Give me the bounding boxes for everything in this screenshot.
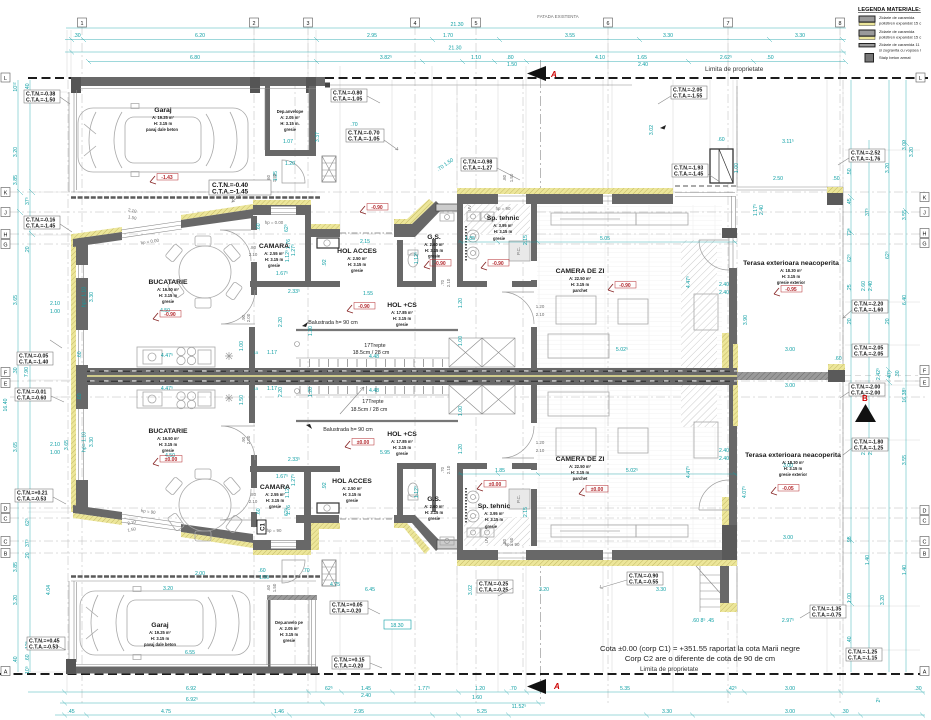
svg-text:1.00: 1.00 [458, 406, 464, 416]
svg-text:.20: .20 [25, 246, 31, 253]
svg-text:Corp C2 are o diferente de cot: Corp C2 are o diferente de cota de 90 de… [625, 654, 775, 663]
svg-text:2.40: 2.40 [719, 448, 729, 454]
svg-text:K: K [923, 196, 927, 202]
svg-text:C.T.A.=-0.53: C.T.A.=-0.53 [17, 497, 46, 503]
svg-text:4.75: 4.75 [161, 709, 171, 715]
svg-text:gresie: gresie [268, 263, 281, 268]
svg-text:.20: .20 [25, 552, 31, 559]
svg-text:3.00: 3.00 [785, 347, 795, 353]
svg-text:3.30: 3.30 [795, 33, 805, 39]
svg-text:C: C [4, 517, 8, 523]
svg-text:2.10: 2.10 [249, 252, 258, 257]
svg-text:1.67⁵: 1.67⁵ [276, 271, 288, 277]
svg-text:1.00: 1.00 [734, 163, 740, 173]
svg-text:gresie: gresie [485, 524, 498, 529]
svg-text:3.20: 3.20 [13, 595, 19, 605]
svg-text:G: G [922, 242, 926, 248]
svg-text:4.48: 4.48 [369, 388, 379, 394]
svg-text:2.10: 2.10 [50, 442, 60, 448]
svg-text:A: 2.60 m²: A: 2.60 m² [424, 242, 444, 247]
svg-text:.20: .20 [885, 318, 891, 325]
svg-text:.60: .60 [266, 584, 271, 591]
svg-text:gresie: gresie [493, 236, 506, 241]
svg-text:H: 3.15 m: H: 3.15 m [154, 121, 173, 126]
svg-text:1.55: 1.55 [363, 291, 373, 297]
svg-text:1.27⁵: 1.27⁵ [291, 474, 297, 486]
svg-text:21.30: 21.30 [449, 46, 462, 52]
svg-text:H: 3.15 m: H: 3.15 m [571, 282, 590, 287]
svg-text:6.45: 6.45 [365, 587, 375, 593]
svg-text:3.55: 3.55 [902, 455, 908, 465]
svg-text:1.00: 1.00 [847, 593, 853, 603]
svg-text:H: 3.15 m: H: 3.15 m [485, 517, 504, 522]
svg-text:2.10: 2.10 [536, 312, 545, 317]
svg-text:A: 2.50 m²: A: 2.50 m² [342, 486, 362, 491]
svg-text:H: 3.15 m: H: 3.15 m [425, 248, 444, 253]
svg-text:L: L [4, 76, 7, 82]
svg-text:.30: .30 [73, 33, 80, 39]
svg-text:A: 18.30 m²: A: 18.30 m² [782, 460, 804, 465]
svg-text:2.40: 2.40 [868, 281, 874, 291]
svg-text:3.90: 3.90 [743, 315, 749, 325]
svg-text:hp = 90: hp = 90 [496, 206, 511, 211]
svg-text:HOL +CS: HOL +CS [387, 302, 417, 309]
svg-text:17Trepte: 17Trepte [364, 343, 385, 349]
svg-text:1.00: 1.00 [50, 309, 60, 315]
svg-text:1.50: 1.50 [272, 173, 277, 182]
svg-text:18.5cm / 28 cm: 18.5cm / 28 cm [353, 350, 390, 356]
svg-text:3.30: 3.30 [89, 292, 95, 302]
svg-text:3.02: 3.02 [468, 585, 474, 595]
svg-text:1.27⁵: 1.27⁵ [291, 244, 297, 256]
svg-text:3.37: 3.37 [315, 132, 321, 142]
svg-text:A: A [4, 670, 8, 676]
svg-text:CAMARA: CAMARA [260, 484, 290, 491]
svg-text:Limita de proprietate: Limita de proprietate [705, 66, 764, 73]
svg-text:6.55: 6.55 [185, 650, 195, 656]
svg-text:3.65: 3.65 [13, 295, 19, 305]
svg-text:3.00: 3.00 [785, 709, 795, 715]
svg-text:.45: .45 [847, 198, 853, 205]
svg-text:Balustrada h= 90 cm: Balustrada h= 90 cm [308, 320, 358, 326]
svg-text:B: B [4, 552, 8, 558]
svg-text:6.92⁵: 6.92⁵ [186, 697, 198, 703]
svg-text:1.20: 1.20 [536, 304, 545, 309]
svg-text:.30: .30 [13, 367, 19, 374]
svg-text:37⁵: 37⁵ [25, 539, 31, 547]
svg-text:Balustrada h= 90 cm: Balustrada h= 90 cm [323, 427, 373, 433]
svg-text:gresie: gresie [346, 498, 359, 503]
svg-text:7: 7 [727, 21, 730, 27]
svg-text:Terasa exterioara neacoperita: Terasa exterioara neacoperita [743, 260, 839, 267]
svg-text:.20: .20 [847, 318, 853, 325]
svg-text:HOL ACCES: HOL ACCES [337, 248, 377, 255]
svg-text:H: 3.15 m: H: 3.15 m [425, 510, 444, 515]
svg-text:1.10: 1.10 [471, 55, 481, 61]
svg-text:3.20: 3.20 [13, 147, 19, 157]
svg-text:1.00: 1.00 [458, 336, 464, 346]
svg-text:2.95: 2.95 [354, 709, 364, 715]
svg-text:Zidarie de caramida: Zidarie de caramida [879, 29, 915, 34]
svg-text:3.55: 3.55 [565, 33, 575, 39]
svg-text:.30: .30 [841, 709, 848, 715]
svg-text:A: 22.50 m²: A: 22.50 m² [569, 276, 591, 281]
svg-text:6.20: 6.20 [195, 33, 205, 39]
svg-text:1.40: 1.40 [865, 555, 871, 565]
svg-text:A: 2.55 m²: A: 2.55 m² [265, 492, 285, 497]
svg-text:K: K [4, 191, 8, 197]
svg-text:pavaj dale beton: pavaj dale beton [146, 127, 179, 132]
svg-text:gresie: gresie [351, 268, 364, 273]
svg-text:C.T.A.=-2.05: C.T.A.=-2.05 [854, 352, 883, 358]
svg-text:3.20: 3.20 [163, 586, 173, 592]
svg-text:15: 15 [254, 386, 259, 391]
svg-text:CAMERA DE ZI: CAMERA DE ZI [556, 456, 605, 463]
svg-text:4: 4 [414, 21, 417, 27]
svg-text:A: 2.55 m²: A: 2.55 m² [264, 251, 284, 256]
svg-text:Garaj: Garaj [151, 622, 168, 629]
svg-text:3.30: 3.30 [662, 709, 672, 715]
svg-text:A: A [550, 70, 557, 79]
svg-text:A: 16.50 m²: A: 16.50 m² [157, 436, 179, 441]
svg-text:.70: .70 [440, 279, 445, 286]
svg-text:BUCATARIE: BUCATARIE [148, 428, 187, 435]
svg-text:.60: .60 [834, 356, 841, 362]
svg-text:2.10: 2.10 [446, 465, 451, 474]
svg-text:C: C [923, 519, 927, 525]
svg-text:Garaj: Garaj [154, 107, 171, 114]
svg-text:62⁵: 62⁵ [284, 224, 290, 232]
svg-text:C.T.A.=-0.20: C.T.A.=-0.20 [334, 664, 363, 670]
svg-text:2.10: 2.10 [249, 499, 258, 504]
svg-text:Cota ±0.00 (corp C1) = +351.55: Cota ±0.00 (corp C1) = +351.55 raportat … [600, 644, 800, 653]
svg-text:C.T.A.=-0.20: C.T.A.=-0.20 [332, 609, 361, 615]
svg-text:A: 3.95 m²: A: 3.95 m² [484, 511, 504, 516]
svg-text:A: 2.05 m²: A: 2.05 m² [280, 115, 300, 120]
svg-text:C: C [923, 540, 927, 546]
svg-text:1.00: 1.00 [50, 450, 60, 456]
svg-text:.50: .50 [832, 176, 839, 182]
svg-text:C.T.A.=-1.55: C.T.A.=-1.55 [673, 94, 702, 100]
svg-text:6.40: 6.40 [902, 295, 908, 305]
svg-text:H: 3.15 m: H: 3.15 m [265, 257, 284, 262]
svg-text:.40: .40 [13, 656, 19, 663]
svg-text:H: 3.15 m: H: 3.15 m [571, 470, 590, 475]
svg-text:C.T.A.=-1.25: C.T.A.=-1.25 [854, 446, 883, 452]
svg-text:A: 2.05 m²: A: 2.05 m² [279, 626, 299, 631]
svg-text:4.47⁵: 4.47⁵ [686, 466, 692, 478]
svg-text:1.77⁵: 1.77⁵ [418, 686, 430, 692]
svg-text:A: 22.50 m²: A: 22.50 m² [569, 464, 591, 469]
svg-text:Stalp beton armat: Stalp beton armat [879, 55, 911, 60]
svg-text:.60: .60 [25, 654, 31, 661]
svg-text:1.20: 1.20 [536, 440, 545, 445]
svg-text:4.10: 4.10 [595, 55, 605, 61]
svg-text:3.00: 3.00 [783, 535, 793, 541]
svg-text:1.20: 1.20 [308, 387, 314, 397]
svg-text:2.40: 2.40 [638, 62, 648, 68]
svg-text:gresie: gresie [283, 638, 296, 643]
svg-text:hp= 1.10: hp= 1.10 [82, 287, 88, 307]
svg-text:1.46: 1.46 [274, 709, 284, 715]
svg-text:2⁵: 2⁵ [876, 697, 882, 702]
svg-text:6: 6 [607, 21, 610, 27]
svg-text:5.35: 5.35 [620, 686, 630, 692]
svg-text:C.T.A.=-1.27: C.T.A.=-1.27 [463, 166, 492, 172]
svg-text:hp = 90: hp = 90 [267, 528, 282, 533]
svg-text:.60: .60 [77, 351, 83, 358]
svg-text:J: J [923, 211, 926, 217]
svg-text:2.40: 2.40 [361, 693, 371, 699]
svg-text:2.40: 2.40 [759, 205, 765, 215]
svg-text:.70: .70 [509, 686, 516, 692]
svg-text:1.50: 1.50 [239, 395, 245, 405]
svg-text:CAMARA: CAMARA [259, 243, 289, 250]
svg-text:gresie: gresie [428, 254, 441, 259]
svg-text:polistiren expandat 15 c: polistiren expandat 15 c [879, 35, 921, 40]
svg-text:42⁵: 42⁵ [729, 686, 737, 692]
svg-text:3.55: 3.55 [902, 210, 908, 220]
svg-text:pavaj dale beton: pavaj dale beton [144, 642, 177, 647]
svg-text:62⁵: 62⁵ [885, 251, 891, 259]
svg-text:.40: .40 [847, 636, 853, 643]
svg-text:10¹²: 10¹² [13, 82, 19, 91]
svg-text:7.90: 7.90 [24, 367, 30, 377]
svg-text:B: B [923, 552, 927, 558]
svg-text:.50: .50 [847, 168, 853, 175]
svg-text:gresie exterior: gresie exterior [779, 472, 808, 477]
svg-text:1.12⁵: 1.12⁵ [414, 252, 420, 264]
svg-text:LEGENDA MATERIALE:: LEGENDA MATERIALE: [858, 7, 921, 13]
svg-text:C.T.A.=-0.75: C.T.A.=-0.75 [812, 613, 841, 619]
svg-text:Limita de proprietate: Limita de proprietate [640, 666, 699, 673]
svg-text:A: 2.50 m²: A: 2.50 m² [347, 256, 367, 261]
svg-text:CAMERA DE ZI: CAMERA DE ZI [556, 268, 605, 275]
svg-text:G.S.: G.S. [427, 496, 441, 503]
svg-text:16.40: 16.40 [3, 398, 9, 411]
svg-text:Zidarie de caramida 11: Zidarie de caramida 11 [879, 42, 920, 47]
svg-text:C.T.A.=-1.76: C.T.A.=-1.76 [851, 157, 880, 163]
svg-text:A: 3.95 m²: A: 3.95 m² [493, 223, 513, 228]
svg-text:C: C [4, 540, 8, 546]
svg-text:Zidarie de caramida: Zidarie de caramida [879, 15, 915, 20]
svg-text:A: A [553, 682, 560, 691]
svg-text:si zugravita cu vopsea l: si zugravita cu vopsea l [879, 48, 921, 53]
svg-text:5: 5 [475, 21, 478, 27]
svg-text:H: 3.15 m: H: 3.15 m [266, 498, 285, 503]
svg-text:.25: .25 [847, 284, 853, 291]
svg-text:G.S.: G.S. [427, 234, 441, 241]
svg-text:37⁵: 37⁵ [25, 197, 31, 205]
svg-text:2.97⁵: 2.97⁵ [782, 618, 794, 624]
svg-text:2.00: 2.00 [195, 571, 205, 577]
svg-text:1.50: 1.50 [507, 62, 517, 68]
svg-text:3.20: 3.20 [909, 147, 915, 157]
svg-text:1: 1 [81, 21, 84, 27]
svg-text:.80: .80 [506, 55, 513, 61]
svg-text:1.70: 1.70 [443, 33, 453, 39]
svg-text:4.75: 4.75 [330, 582, 340, 588]
svg-text:C.T.A.=-1.40: C.T.A.=-1.40 [19, 360, 48, 366]
svg-text:4.47⁵: 4.47⁵ [161, 386, 173, 392]
svg-text:H: H [923, 232, 927, 238]
svg-text:2.33⁵: 2.33⁵ [288, 457, 300, 463]
svg-text:G: G [3, 243, 7, 249]
svg-text:C.T.A.=-0.55: C.T.A.=-0.55 [629, 580, 658, 586]
svg-text:3.00: 3.00 [902, 140, 908, 150]
svg-text:A: 2.60 m²: A: 2.60 m² [424, 504, 444, 509]
svg-text:1.20: 1.20 [458, 444, 464, 454]
svg-text:6.80: 6.80 [190, 55, 200, 61]
svg-text:1.20: 1.20 [285, 161, 295, 167]
svg-text:gresie: gresie [428, 516, 441, 521]
svg-text:B: B [862, 394, 868, 403]
svg-text:C.T.A.=-1.45: C.T.A.=-1.45 [674, 172, 703, 178]
svg-text:gresie: gresie [396, 451, 409, 456]
svg-text:HOL +CS: HOL +CS [387, 431, 417, 438]
svg-text:.92: .92 [322, 482, 328, 489]
svg-text:C.T.A.=-0.53: C.T.A.=-0.53 [29, 645, 58, 651]
svg-text:H: 3.15 m: H: 3.15 m [782, 274, 801, 279]
svg-text:2: 2 [253, 21, 256, 27]
svg-text:A: A [923, 670, 927, 676]
svg-text:C.T.A.=-1.15: C.T.A.=-1.15 [848, 656, 877, 662]
svg-text:4.07⁵: 4.07⁵ [742, 486, 748, 498]
svg-text:P.C.: P.C. [516, 247, 521, 255]
svg-text:62⁵: 62⁵ [25, 518, 31, 526]
svg-text:C.T.A.=-1.05: C.T.A.=-1.05 [348, 137, 380, 143]
svg-text:4.47⁵: 4.47⁵ [686, 276, 692, 288]
svg-text:parchet: parchet [573, 476, 588, 481]
svg-text:47⁵: 47⁵ [887, 370, 893, 378]
svg-text:4.47⁵: 4.47⁵ [161, 353, 173, 359]
svg-text:2.20: 2.20 [278, 387, 284, 397]
svg-text:gresie: gresie [162, 448, 175, 453]
svg-text:C.T.A.=-1.60: C.T.A.=-1.60 [854, 308, 883, 314]
svg-text:H: H [4, 233, 8, 239]
svg-text:1.20: 1.20 [308, 326, 314, 336]
svg-text:C.T.A.=-1.05: C.T.A.=-1.05 [333, 97, 362, 103]
svg-text:1.85: 1.85 [495, 468, 505, 474]
svg-text:.60: .60 [77, 393, 83, 400]
svg-text:72⁵: 72⁵ [847, 228, 853, 236]
svg-text:1.20: 1.20 [458, 298, 464, 308]
svg-text:H: 3.15 m: H: 3.15 m [784, 466, 803, 471]
svg-text:2.40: 2.40 [719, 290, 729, 296]
svg-text:.95: .95 [847, 536, 853, 543]
svg-text:3.65: 3.65 [64, 440, 70, 450]
svg-text:3.00: 3.00 [785, 686, 795, 692]
svg-text:1.17: 1.17 [267, 350, 277, 356]
svg-text:C.T.A.=-1.45: C.T.A.=-1.45 [26, 224, 55, 230]
svg-text:.70: .70 [302, 568, 309, 574]
svg-text:1.07: 1.07 [283, 139, 293, 145]
svg-text:Dep.anvelo pe: Dep.anvelo pe [275, 620, 303, 625]
svg-text:2.10: 2.10 [536, 448, 545, 453]
svg-text:A: 17.85 m²: A: 17.85 m² [391, 310, 413, 315]
svg-text:1.20: 1.20 [475, 686, 485, 692]
svg-text:37⁵: 37⁵ [865, 208, 871, 216]
svg-text:2.62⁵: 2.62⁵ [720, 55, 732, 61]
svg-text:2.20: 2.20 [278, 317, 284, 327]
svg-text:3.00: 3.00 [785, 383, 795, 389]
svg-text:2.42⁵: 2.42⁵ [876, 368, 882, 380]
svg-text:H: 3.15 m: H: 3.15 m [393, 445, 412, 450]
svg-text:D: D [923, 509, 927, 515]
svg-text:1.50: 1.50 [259, 575, 269, 581]
svg-text:2.95: 2.95 [367, 33, 377, 39]
svg-text:.60 8⁵ .45: .60 8⁵ .45 [692, 618, 714, 624]
svg-text:3.11⁵: 3.11⁵ [782, 139, 794, 145]
svg-text:62⁵: 62⁵ [847, 254, 853, 262]
svg-text:2.50: 2.50 [773, 176, 783, 182]
svg-text:1.65: 1.65 [637, 55, 647, 61]
svg-text:6.92: 6.92 [186, 686, 196, 692]
svg-text:C1: C1 [261, 523, 267, 531]
svg-text:H: 3.15 m: H: 3.15 m [393, 316, 412, 321]
svg-text:11.52⁵: 11.52⁵ [512, 704, 527, 710]
svg-text:P.C.: P.C. [516, 495, 521, 503]
svg-text:gresie: gresie [162, 299, 175, 304]
svg-text:5.25: 5.25 [477, 709, 487, 715]
svg-text:8: 8 [839, 21, 842, 27]
svg-text:1.17: 1.17 [267, 386, 277, 392]
svg-text:UV: UV [484, 537, 489, 543]
svg-text:.80: .80 [502, 538, 507, 545]
svg-text:FATADA EXISTENTA: FATADA EXISTENTA [537, 14, 579, 19]
svg-text:.60: .60 [258, 568, 265, 574]
svg-text:Sp. tehnic: Sp. tehnic [478, 503, 511, 510]
svg-text:L: L [919, 76, 922, 82]
svg-text:3.85: 3.85 [13, 175, 19, 185]
svg-text:2.40: 2.40 [719, 282, 729, 288]
svg-text:A: 19.25 m²: A: 19.25 m² [152, 115, 174, 120]
svg-text:15: 15 [254, 350, 259, 355]
svg-text:2.15: 2.15 [523, 235, 529, 245]
svg-text:5.05: 5.05 [600, 236, 610, 242]
svg-text:H: 3.15 m: H: 3.15 m [159, 293, 178, 298]
svg-text:C.T.A.=-0.60: C.T.A.=-0.60 [17, 396, 46, 402]
svg-text:A: 17.85 m²: A: 17.85 m² [391, 439, 413, 444]
svg-text:HOL ACCES: HOL ACCES [332, 478, 372, 485]
svg-text:62⁵: 62⁵ [284, 508, 290, 516]
svg-text:UV: UV [467, 205, 472, 211]
svg-text:16.38⁵: 16.38⁵ [902, 387, 908, 402]
svg-text:3.30: 3.30 [656, 587, 666, 593]
svg-text:J: J [4, 211, 7, 217]
svg-text:4.04: 4.04 [46, 585, 52, 595]
svg-text:1.60: 1.60 [472, 695, 482, 701]
svg-text:1.00: 1.00 [239, 341, 245, 351]
svg-text:18.5cm / 28 cm: 18.5cm / 28 cm [351, 407, 388, 413]
svg-text:2.40: 2.40 [719, 456, 729, 462]
svg-text:E: E [4, 382, 8, 388]
svg-text:gresie: gresie [269, 504, 282, 509]
svg-text:.30: .30 [895, 370, 901, 377]
svg-text:1.50: 1.50 [272, 583, 277, 592]
svg-text:.45: .45 [67, 709, 74, 715]
svg-text:parchet: parchet [573, 288, 588, 293]
svg-text:A: 19.25 m²: A: 19.25 m² [149, 630, 171, 635]
svg-text:H: 3.15 m: H: 3.15 m [494, 229, 513, 234]
svg-text:5.95: 5.95 [380, 450, 390, 456]
svg-text:2.33⁵: 2.33⁵ [288, 289, 300, 295]
svg-text:gresie exterior: gresie exterior [777, 280, 806, 285]
svg-text:2.10: 2.10 [446, 278, 451, 287]
svg-text:5.02⁵: 5.02⁵ [626, 468, 638, 474]
svg-text:3.20: 3.20 [885, 163, 891, 173]
svg-text:2.60: 2.60 [861, 281, 867, 291]
